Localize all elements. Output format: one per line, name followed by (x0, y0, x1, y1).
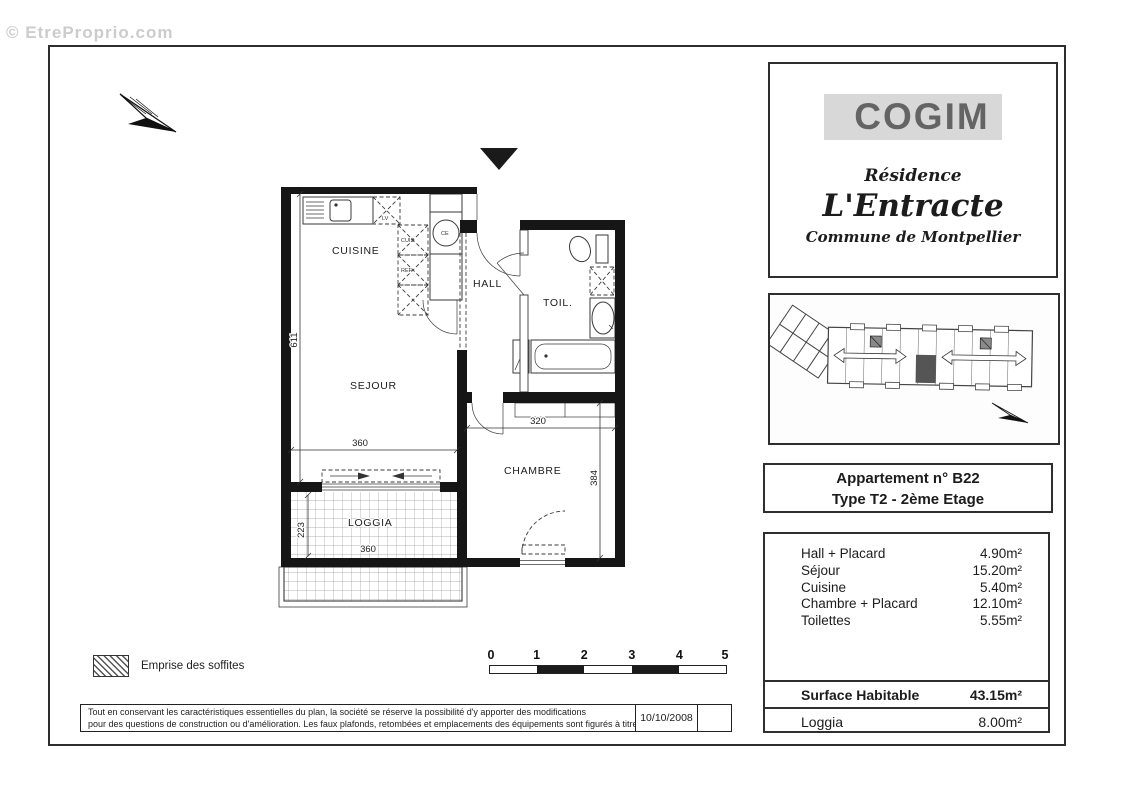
highlighted-unit (916, 355, 936, 383)
dim-loggia-width: 360 (360, 544, 376, 555)
north-arrow-icon (112, 88, 184, 142)
surface-habitable-row: Surface Habitable 43.15m² (765, 680, 1048, 707)
areas-table: Hall + Placard 4.90m² Séjour 15.20m² Cui… (763, 532, 1050, 733)
soffits-legend-label: Emprise des soffites (141, 660, 244, 672)
room-label-sejour: SEJOUR (350, 380, 397, 392)
row-label: Hall + Placard (801, 546, 885, 563)
row-label: Cuisine (801, 580, 846, 597)
bedroom-window (520, 511, 565, 565)
kitchen-counter (303, 197, 373, 224)
watermark: © EtreProprio.com (6, 23, 173, 43)
scale-bar-segments (489, 665, 727, 674)
surface-value: 43.15m² (970, 687, 1022, 703)
surface-label: Surface Habitable (801, 687, 919, 703)
row-label: Séjour (801, 563, 840, 580)
sink-icon (330, 200, 351, 221)
svg-text:LV: LV (382, 216, 389, 222)
table-row: Toilettes 5.55m² (801, 613, 1022, 630)
scale-tick: 3 (628, 648, 635, 662)
hall-boundary-soffit (460, 233, 466, 350)
svg-text:CE: CE (441, 231, 449, 237)
brand-box: COGIM Résidence L'Entracte Commune de Mo… (768, 62, 1058, 278)
site-plan-drawing (770, 295, 1058, 443)
loggia-label: Loggia (801, 714, 843, 730)
room-label-cuisine: CUISINE (332, 245, 380, 257)
row-value: 4.90m² (980, 546, 1022, 563)
residence-commune: Commune de Montpellier (770, 228, 1056, 246)
scale-tick: 1 (533, 648, 540, 662)
dishwasher: LV (373, 197, 400, 224)
row-value: 15.20m² (972, 563, 1022, 580)
svg-text:CUIS: CUIS (401, 238, 414, 244)
bath-closet (590, 267, 614, 295)
dim-left-wall: 611 (289, 332, 300, 347)
disclaimer-line1: Tout en conservant les caractéristiques … (88, 707, 631, 719)
row-label: Chambre + Placard (801, 596, 918, 613)
table-row: Séjour 15.20m² (801, 563, 1022, 580)
disclaimer-line2: pour des questions de construction ou d'… (88, 719, 631, 731)
entrance-arrow-icon (480, 148, 518, 170)
room-area-rows: Hall + Placard 4.90m² Séjour 15.20m² Cui… (765, 546, 1048, 630)
dim-loggia-depth: 223 (296, 522, 307, 538)
scale-tick: 0 (488, 648, 495, 662)
loggia-row: Loggia 8.00m² (765, 707, 1048, 735)
residence-name: L'Entracte (770, 188, 1056, 224)
row-value: 5.55m² (980, 613, 1022, 630)
toilet (566, 233, 608, 265)
table-row: Cuisine 5.40m² (801, 580, 1022, 597)
dim-chambre-height: 384 (589, 470, 600, 486)
scale-tick: 4 (676, 648, 683, 662)
apartment-type: Type T2 - 2ème Etage (765, 489, 1051, 510)
floor-plan: LV CUIS REF CE (270, 140, 630, 612)
loggia-value: 8.00m² (978, 714, 1022, 730)
bedroom-door (472, 403, 503, 434)
apartment-title-box: Appartement n° B22 Type T2 - 2ème Etage (763, 463, 1053, 513)
scale-tick: 2 (581, 648, 588, 662)
disclaimer-text: Tout en conservant les caractéristiques … (81, 705, 635, 731)
site-north-arrow-icon (992, 403, 1028, 423)
scanned-floorplan-document: { "watermark": "© EtreProprio.com", "bra… (0, 0, 1129, 800)
room-label-hall: HALL (473, 278, 502, 290)
apartment-number: Appartement n° B22 (765, 468, 1051, 489)
row-label: Toilettes (801, 613, 851, 630)
kitchen-closet (423, 254, 462, 334)
room-label-loggia: LOGGIA (348, 517, 392, 529)
date-cell: 10/10/2008 (635, 705, 697, 731)
row-value: 12.10m² (972, 596, 1022, 613)
disclaimer-box: Tout en conservant les caractéristiques … (80, 704, 732, 732)
cogim-logo: COGIM (824, 94, 1001, 140)
washbasin (590, 298, 615, 338)
svg-text:REF: REF (401, 268, 413, 274)
empty-cell (697, 705, 731, 731)
room-label-chambre: CHAMBRE (504, 465, 561, 477)
table-row: Hall + Placard 4.90m² (801, 546, 1022, 563)
soffits-hatch-swatch (93, 655, 129, 677)
row-value: 5.40m² (980, 580, 1022, 597)
scale-tick: 5 (722, 648, 729, 662)
appliance-column: CUIS REF (398, 225, 428, 315)
building-site-plan (768, 293, 1060, 445)
table-row: Chambre + Placard 12.10m² (801, 596, 1022, 613)
scale-bar: 0 1 2 3 4 5 (489, 648, 727, 676)
sliding-bay (322, 470, 440, 490)
dim-chambre-width: 320 (530, 416, 546, 427)
dim-sejour-width: 360 (352, 438, 368, 449)
residence-label: Résidence (770, 166, 1056, 186)
room-label-toil: TOIL. (543, 297, 573, 309)
